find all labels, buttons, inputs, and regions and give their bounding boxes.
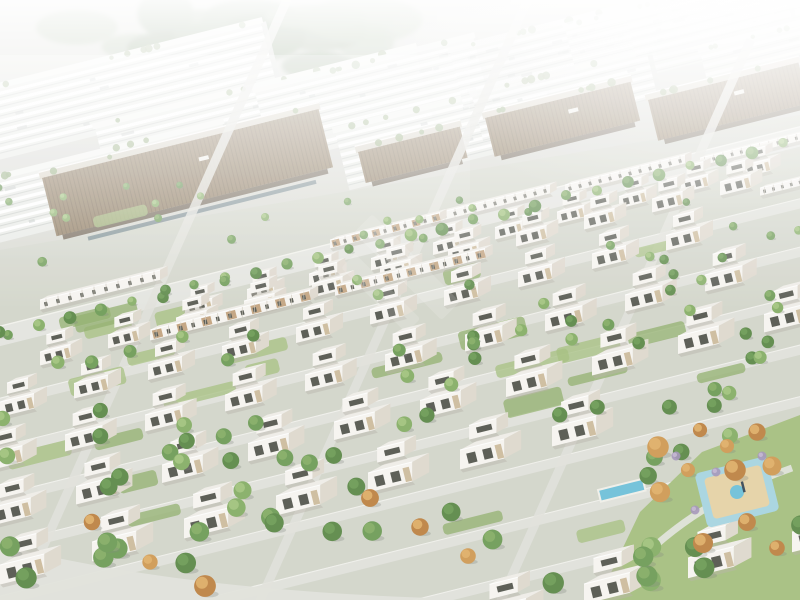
scene-canvas bbox=[0, 0, 800, 600]
aerial-render-image bbox=[0, 0, 800, 600]
